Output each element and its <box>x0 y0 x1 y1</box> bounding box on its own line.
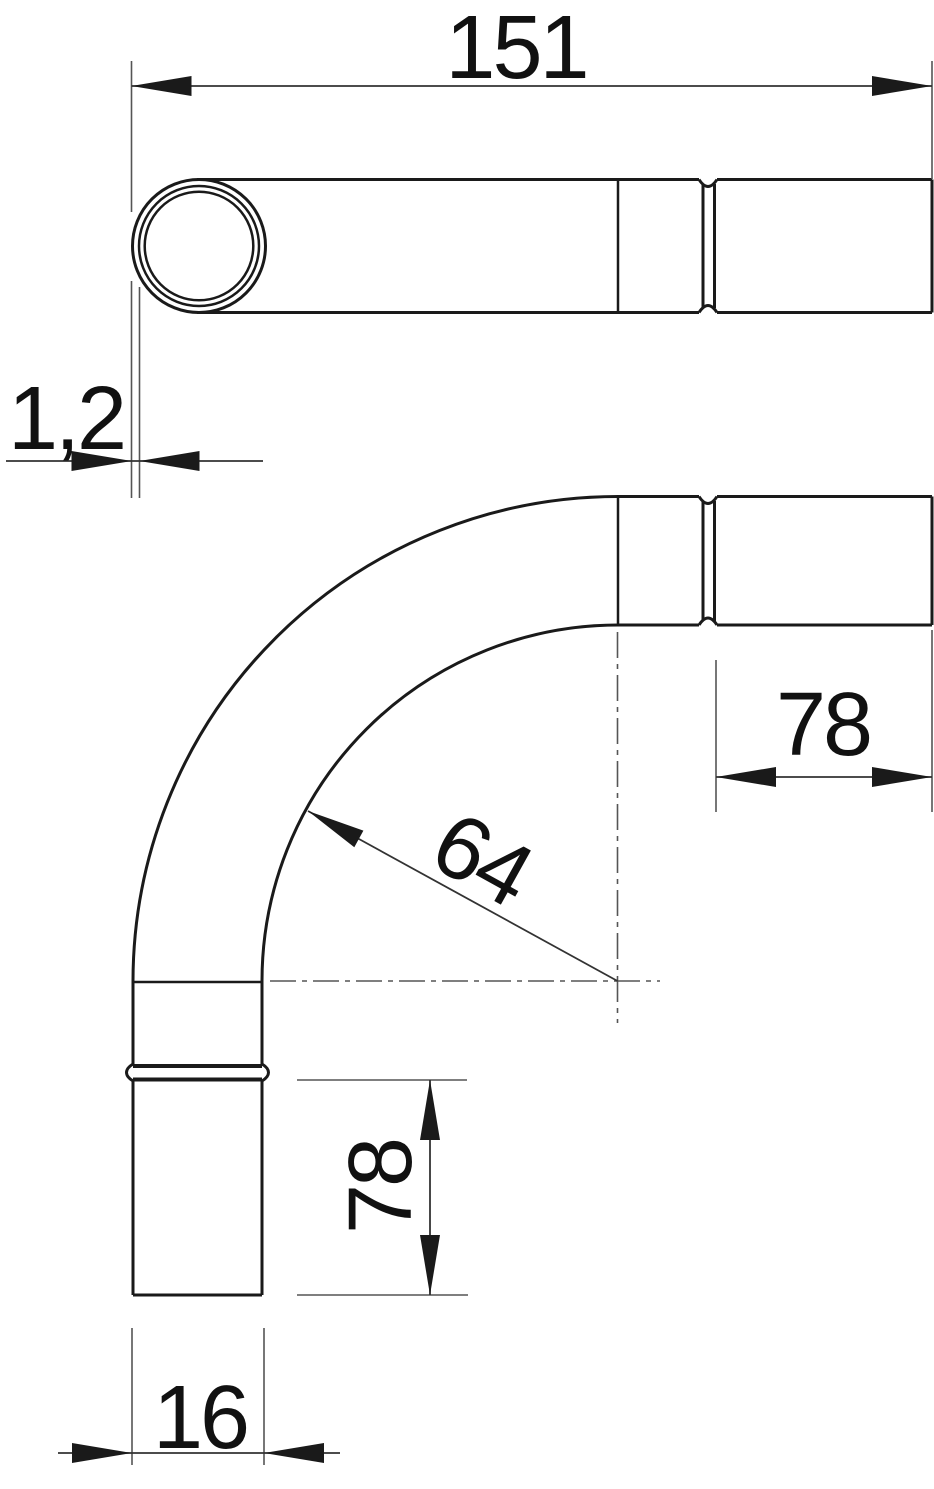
tube-inner-circle <box>145 192 254 301</box>
bend-outer-arc <box>133 497 618 982</box>
dimension-socket-end-length: 78 <box>716 630 932 812</box>
arrowhead-left-icon <box>132 76 192 96</box>
bend-view-90-degree <box>127 497 933 1296</box>
overall-length-label: 151 <box>445 0 586 98</box>
side-view-straight-conduit <box>133 180 933 313</box>
bend-inner-arc <box>262 625 618 981</box>
arrowhead-78-left-icon <box>716 767 776 787</box>
socket-end-length-label: 78 <box>776 675 870 775</box>
dimension-straight-end-length: 78 <box>297 1080 468 1295</box>
dimension-bend-radius: 64 <box>308 793 618 981</box>
arrowhead-wall-right-icon <box>140 451 200 471</box>
socket-outer-circle <box>133 180 266 313</box>
outer-diameter-label: 16 <box>153 1368 247 1468</box>
straight-end-length-label: 78 <box>331 1140 431 1234</box>
technical-drawing-canvas: 151 1,2 <box>0 0 934 1489</box>
bend-radius-label: 64 <box>416 793 548 927</box>
vertical-crimp-bump-left <box>127 1064 134 1081</box>
arrowhead-78-right-icon <box>872 767 932 787</box>
arrowhead-16-left-icon <box>72 1443 132 1463</box>
tube-outer-circle <box>139 186 259 306</box>
dimension-outer-diameter: 16 <box>58 1328 340 1468</box>
arrowhead-78-bottom-icon <box>420 1235 440 1295</box>
drawing-page: 151 1,2 <box>0 0 934 1489</box>
arrowhead-78-top-icon <box>420 1080 440 1140</box>
arrowhead-16-right-icon <box>264 1443 324 1463</box>
vertical-crimp-bump-right <box>262 1064 269 1081</box>
arrowhead-right-icon <box>872 76 932 96</box>
wall-thickness-label: 1,2 <box>8 369 124 469</box>
radius-arrowhead-icon <box>308 811 363 847</box>
